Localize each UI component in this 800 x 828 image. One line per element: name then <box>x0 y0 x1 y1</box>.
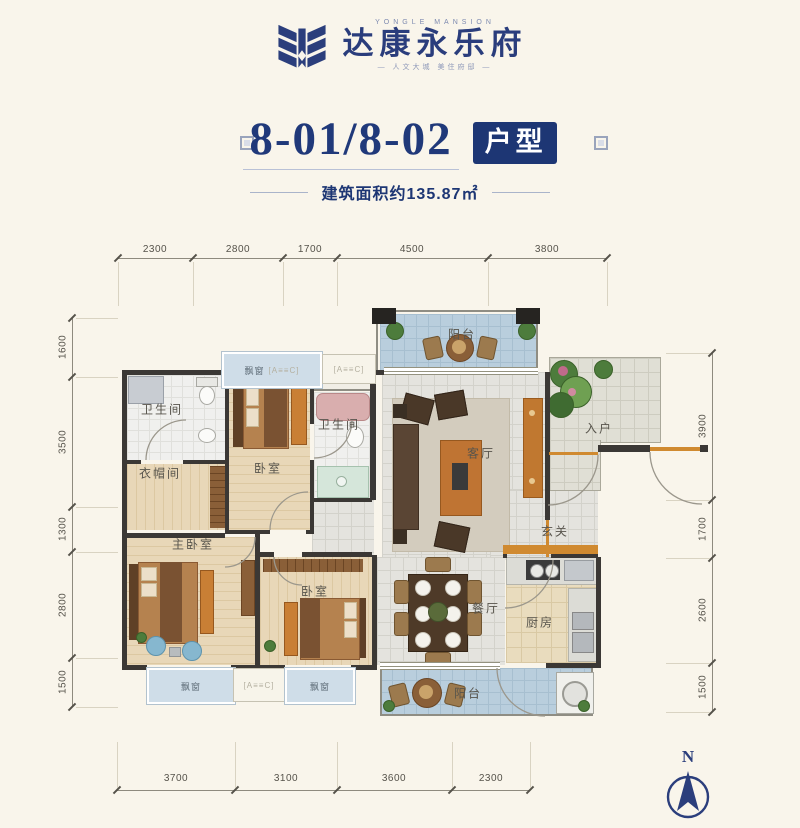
room-label-balcony-bottom: 阳台 <box>454 685 482 702</box>
dining-chair <box>394 580 409 604</box>
bed-blanket <box>300 598 320 658</box>
bench <box>284 602 298 656</box>
area-note: 建筑面积约135.87㎡ <box>322 180 479 204</box>
wall <box>370 372 376 500</box>
room-label-balcony-top: 阳台 <box>448 326 476 343</box>
dim-ext <box>283 262 284 306</box>
pillow <box>246 387 259 406</box>
dim-ext <box>117 742 118 788</box>
dim-top-2: 2800 <box>213 244 263 255</box>
desk <box>241 560 255 616</box>
toilet <box>199 386 215 405</box>
bay-window-label: 飘窗 <box>310 680 330 693</box>
dim-ext <box>337 262 338 306</box>
wall <box>700 445 708 452</box>
dim-ext <box>452 742 453 788</box>
wall <box>545 372 550 520</box>
dim-ext <box>76 658 118 659</box>
wall <box>225 372 229 534</box>
plant-icon <box>264 640 276 652</box>
ac-box-top: [A≡≡C] <box>322 354 376 384</box>
bay-window-label: 飘窗 <box>181 680 201 693</box>
north-compass: N <box>656 748 720 822</box>
sink <box>198 428 216 443</box>
balcony-rail <box>380 714 593 716</box>
plant-icon <box>383 700 395 712</box>
wardrobe <box>263 559 363 572</box>
dim-ext <box>337 742 338 788</box>
center-dish <box>428 602 448 622</box>
brand-english: YONGLE MANSION <box>375 19 495 26</box>
dim-line-right <box>712 353 713 712</box>
ac-box-bottom: [A≡≡C] <box>233 668 285 702</box>
flower-icon <box>568 388 576 396</box>
bay-window-label: 飘窗 <box>245 364 265 377</box>
side-table <box>393 530 407 544</box>
bay-window-top: 飘窗 [A≡≡C] <box>222 352 322 388</box>
cabinet-knob <box>529 478 535 484</box>
dim-ext <box>607 262 608 306</box>
wall <box>127 460 141 464</box>
burner <box>545 564 559 578</box>
wall <box>127 665 147 670</box>
dim-top-1: 2300 <box>130 244 180 255</box>
wall <box>372 555 377 667</box>
dim-bottom-1: 3700 <box>151 773 201 784</box>
dim-bottom-4: 2300 <box>466 773 516 784</box>
room-label-dining: 餐厅 <box>472 600 500 617</box>
bed-blanket <box>264 383 287 447</box>
dim-ext <box>76 318 118 319</box>
wall <box>183 460 225 464</box>
room-label-bath-mid: 卫生间 <box>318 416 360 433</box>
wall <box>302 552 372 557</box>
dim-ext <box>666 558 710 559</box>
armchair <box>182 641 202 661</box>
dim-right-1: 3900 <box>696 403 710 449</box>
patio-table-top <box>419 685 433 699</box>
burner <box>530 564 544 578</box>
sink <box>572 632 594 653</box>
plate <box>415 580 431 596</box>
sofa <box>393 424 419 530</box>
room-label-foyer: 玄关 <box>541 523 569 540</box>
dim-left-5: 1500 <box>56 659 70 705</box>
brand-tagline: — 人文大城 美住府邸 — <box>378 62 493 72</box>
room-label-living: 客厅 <box>467 445 495 462</box>
plant-icon <box>386 322 404 340</box>
pillow <box>344 621 357 638</box>
bay-window-bottom-right: 飘窗 <box>285 668 355 704</box>
dim-ext <box>193 262 194 306</box>
dim-ext <box>235 742 236 788</box>
pillow <box>344 602 357 619</box>
bench <box>200 570 214 634</box>
dim-left-1: 1600 <box>56 324 70 370</box>
brand-chinese: 达康永乐府 <box>343 26 528 62</box>
dim-left-4: 2800 <box>56 582 70 628</box>
side-table <box>393 404 407 418</box>
wall <box>503 554 507 558</box>
room-label-bedroom-top: 卧室 <box>254 460 282 477</box>
sliding-door <box>384 367 538 375</box>
dim-ext <box>488 262 489 306</box>
bed-headboard <box>233 383 243 447</box>
counter-sink <box>564 560 594 581</box>
dim-top-5: 3800 <box>522 244 572 255</box>
kitchen-counter-pass <box>503 545 598 554</box>
cabinet-knob <box>529 410 535 416</box>
dim-top-3: 1700 <box>285 244 335 255</box>
tea-tray <box>452 463 468 490</box>
pillar <box>516 308 540 324</box>
dining-chair <box>425 557 451 572</box>
dim-ext <box>76 377 118 378</box>
wall <box>306 530 312 534</box>
unit-title-row: 8-01/8-02 户型 <box>0 116 800 170</box>
book-logo-icon <box>273 14 331 77</box>
room-label-cloakroom: 衣帽间 <box>139 465 181 482</box>
threshold <box>549 452 598 455</box>
dim-ext <box>530 742 531 788</box>
wall <box>596 557 601 665</box>
sink <box>572 612 594 630</box>
dim-tick <box>603 254 611 262</box>
bench <box>291 387 307 445</box>
sliding-door <box>380 662 500 670</box>
plant-icon <box>594 360 613 379</box>
wall <box>122 370 127 670</box>
entry-door-leaf <box>650 447 700 451</box>
unit-type-badge: 户型 <box>473 122 557 164</box>
entry-floor-lower <box>549 440 601 491</box>
dim-bottom-2: 3100 <box>261 773 311 784</box>
room-label-bath-top: 卫生间 <box>141 401 183 418</box>
dim-right-3: 2600 <box>696 587 710 633</box>
north-label: N <box>656 748 720 765</box>
room-label-master: 主卧室 <box>172 536 214 553</box>
dim-line-bottom <box>117 790 530 791</box>
dim-bottom-3: 3600 <box>369 773 419 784</box>
dining-chair <box>394 612 409 636</box>
room-label-kitchen: 厨房 <box>526 614 554 631</box>
ac-annotation: [A≡≡C] <box>334 365 365 374</box>
plate <box>445 632 461 648</box>
corridor-floor <box>312 500 374 557</box>
bay-window-bottom-left: 飘窗 <box>147 668 235 704</box>
divider <box>250 192 308 193</box>
pillar <box>372 308 396 324</box>
dim-ext <box>666 353 710 354</box>
wall <box>551 554 598 558</box>
pillow <box>141 583 157 597</box>
pillow <box>246 408 259 427</box>
ac-annotation: [A≡≡C] <box>269 366 300 375</box>
wall <box>122 370 226 375</box>
dim-ext <box>76 507 118 508</box>
bed-blanket <box>160 562 182 642</box>
dim-ext <box>666 712 710 713</box>
dim-ext <box>76 707 118 708</box>
balcony-rail <box>380 668 382 716</box>
armchair <box>146 636 166 656</box>
flower-icon <box>558 366 568 376</box>
armchair <box>434 390 468 421</box>
shower-drain <box>336 476 347 487</box>
dim-top-4: 4500 <box>387 244 437 255</box>
wall <box>312 389 370 391</box>
side-table <box>169 647 181 657</box>
brand-logo: YONGLE MANSION 达康永乐府 — 人文大城 美住府邸 — <box>0 14 800 77</box>
wall <box>312 498 372 502</box>
pillow <box>141 567 157 581</box>
wall <box>260 552 274 557</box>
plate <box>415 632 431 648</box>
plant-icon <box>518 322 536 340</box>
wardrobe <box>210 466 225 528</box>
bed-headboard <box>129 564 138 640</box>
dim-ext <box>118 262 119 306</box>
area-row: 建筑面积约135.87㎡ <box>0 180 800 204</box>
ac-annotation: [A≡≡C] <box>244 681 275 690</box>
dim-left-2: 3500 <box>56 419 70 465</box>
page-title: 8-01/8-02 <box>243 116 458 170</box>
room-label-bedroom-bottom: 卧室 <box>301 583 329 600</box>
plate <box>445 580 461 596</box>
wall <box>598 445 650 452</box>
divider <box>492 192 550 193</box>
dim-ext <box>76 552 118 553</box>
north-arrow-icon <box>656 765 720 823</box>
wall <box>229 530 270 534</box>
dim-ext <box>666 500 710 501</box>
wall <box>546 663 601 668</box>
dim-right-4: 1500 <box>696 664 710 710</box>
plant-icon <box>136 632 147 643</box>
room-label-entry: 入户 <box>585 420 613 437</box>
dim-left-3: 1300 <box>56 506 70 552</box>
plant-icon <box>578 700 590 712</box>
wall <box>310 460 314 534</box>
dim-right-2: 1700 <box>696 506 710 552</box>
